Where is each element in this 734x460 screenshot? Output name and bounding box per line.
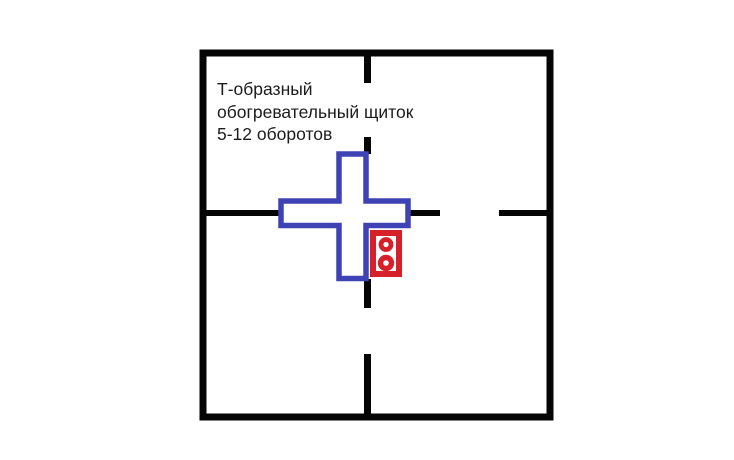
wall-vertical-bottom-segment-2 (364, 354, 371, 417)
wall-horizontal-right-segment-2 (499, 210, 550, 216)
stove-icon (373, 233, 399, 274)
floor-plan-drawing (0, 0, 734, 460)
heater-annotation: Т-образный обогревательный щиток 5-12 об… (217, 78, 413, 146)
floor-plan-diagram: Т-образный обогревательный щиток 5-12 об… (0, 0, 734, 460)
annotation-line-1: Т-образный (217, 78, 413, 101)
annotation-line-2: обогревательный щиток (217, 101, 413, 124)
wall-vertical-bottom-segment-1 (364, 279, 371, 308)
wall-horizontal-left-segment (203, 210, 279, 216)
wall-horizontal-right-segment-1 (409, 210, 440, 216)
annotation-line-3: 5-12 оборотов (217, 123, 413, 146)
